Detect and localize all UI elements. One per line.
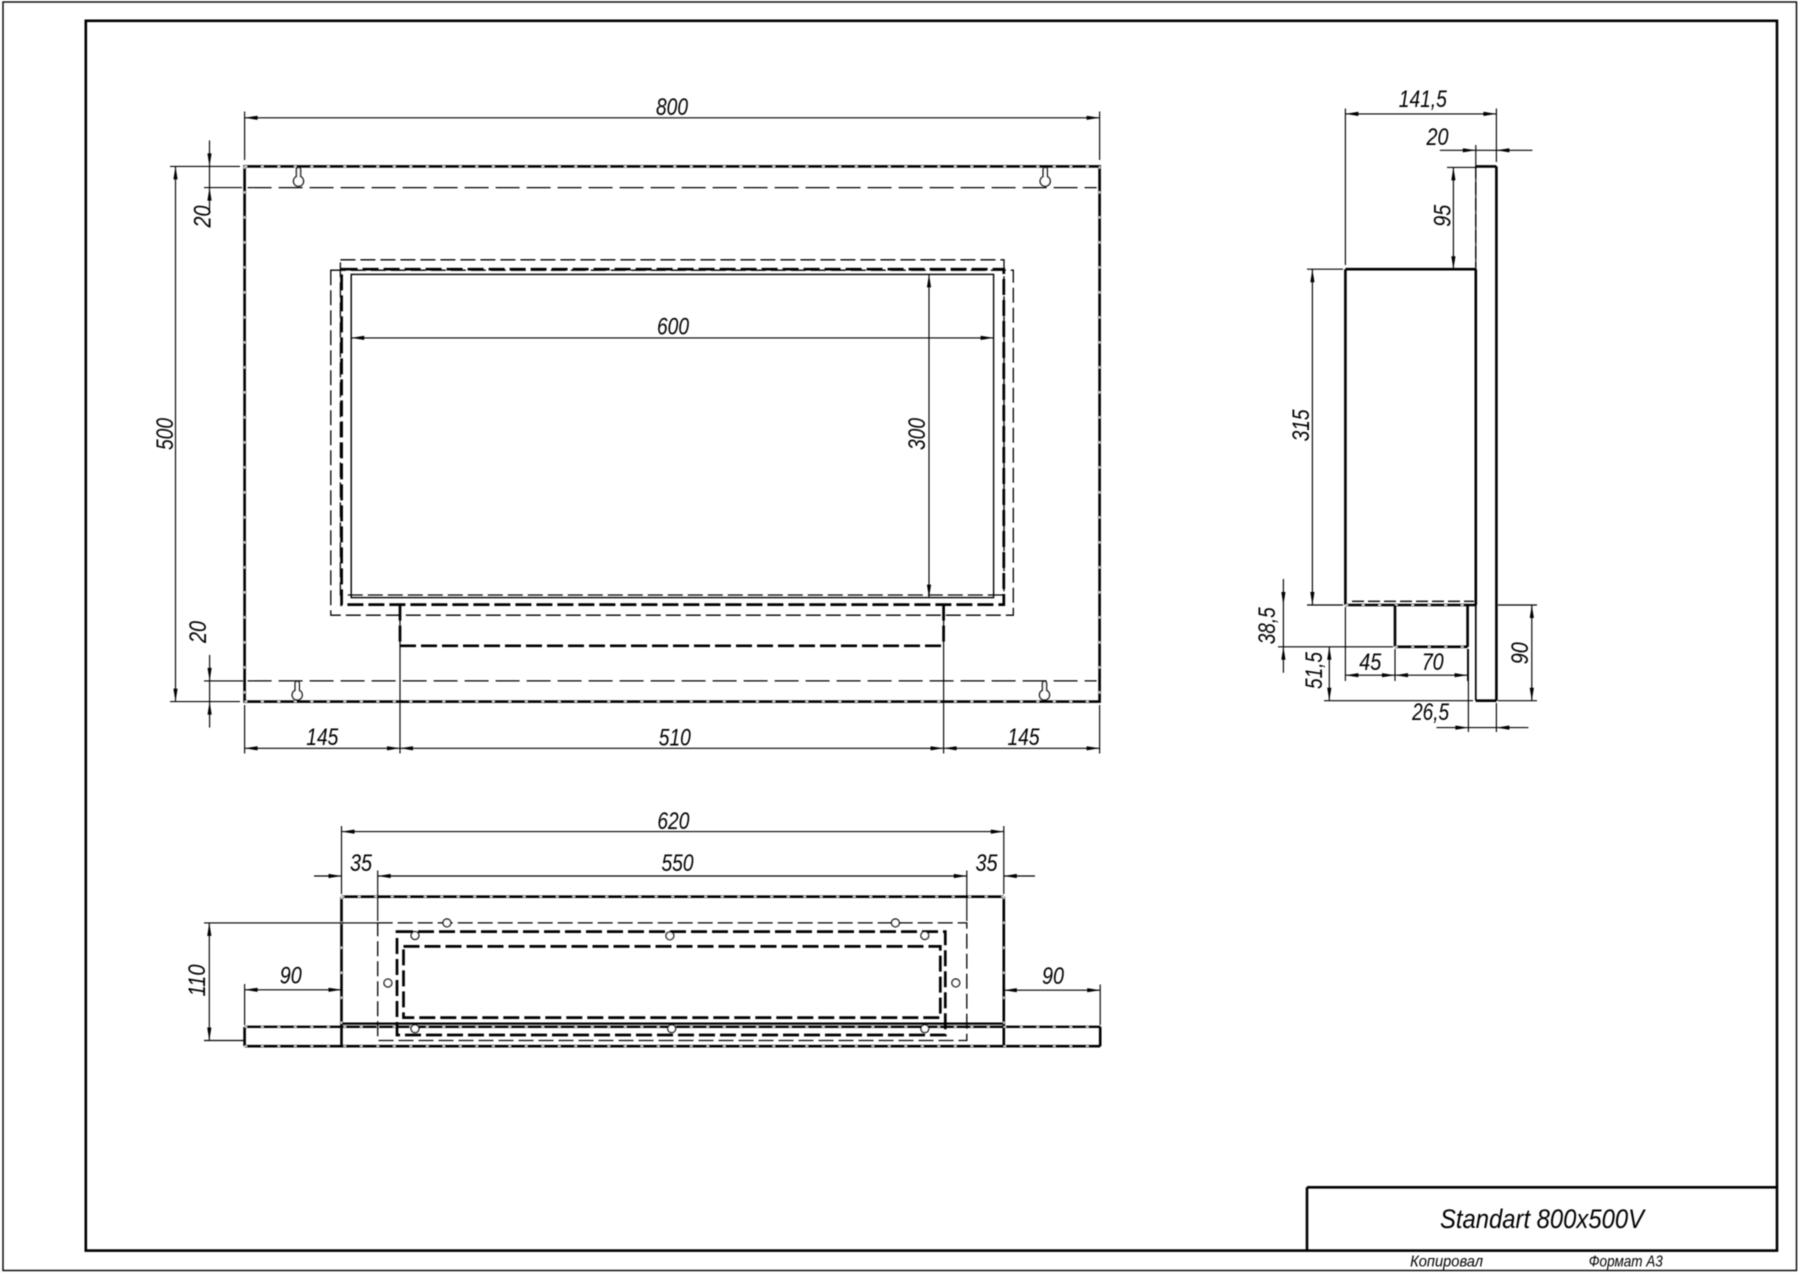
svg-text:110: 110 — [184, 964, 211, 997]
svg-text:Копировал: Копировал — [1410, 1253, 1483, 1270]
svg-text:38,5: 38,5 — [1254, 607, 1281, 645]
svg-text:145: 145 — [306, 724, 339, 751]
svg-text:Standart 800x500V: Standart 800x500V — [1440, 1204, 1646, 1234]
svg-text:300: 300 — [904, 417, 931, 450]
svg-text:70: 70 — [1422, 649, 1445, 676]
svg-text:51,5: 51,5 — [1301, 651, 1328, 689]
svg-text:20: 20 — [1426, 124, 1449, 151]
svg-text:Формат А3: Формат А3 — [1589, 1253, 1663, 1270]
svg-text:20: 20 — [185, 620, 212, 643]
svg-text:26,5: 26,5 — [1411, 699, 1449, 726]
svg-text:510: 510 — [659, 724, 692, 751]
svg-text:145: 145 — [1008, 724, 1041, 751]
svg-text:800: 800 — [656, 94, 689, 121]
svg-text:141,5: 141,5 — [1399, 86, 1448, 113]
svg-text:90: 90 — [1507, 642, 1534, 665]
svg-text:45: 45 — [1359, 649, 1382, 676]
svg-text:35: 35 — [976, 850, 999, 877]
svg-text:620: 620 — [657, 808, 690, 835]
svg-text:315: 315 — [1288, 409, 1315, 442]
svg-text:20: 20 — [190, 205, 217, 228]
svg-text:500: 500 — [152, 417, 179, 450]
svg-text:90: 90 — [280, 963, 303, 990]
svg-text:35: 35 — [350, 850, 373, 877]
svg-text:550: 550 — [662, 850, 695, 877]
svg-text:90: 90 — [1042, 963, 1065, 990]
svg-text:600: 600 — [657, 314, 690, 341]
svg-text:95: 95 — [1430, 204, 1457, 227]
